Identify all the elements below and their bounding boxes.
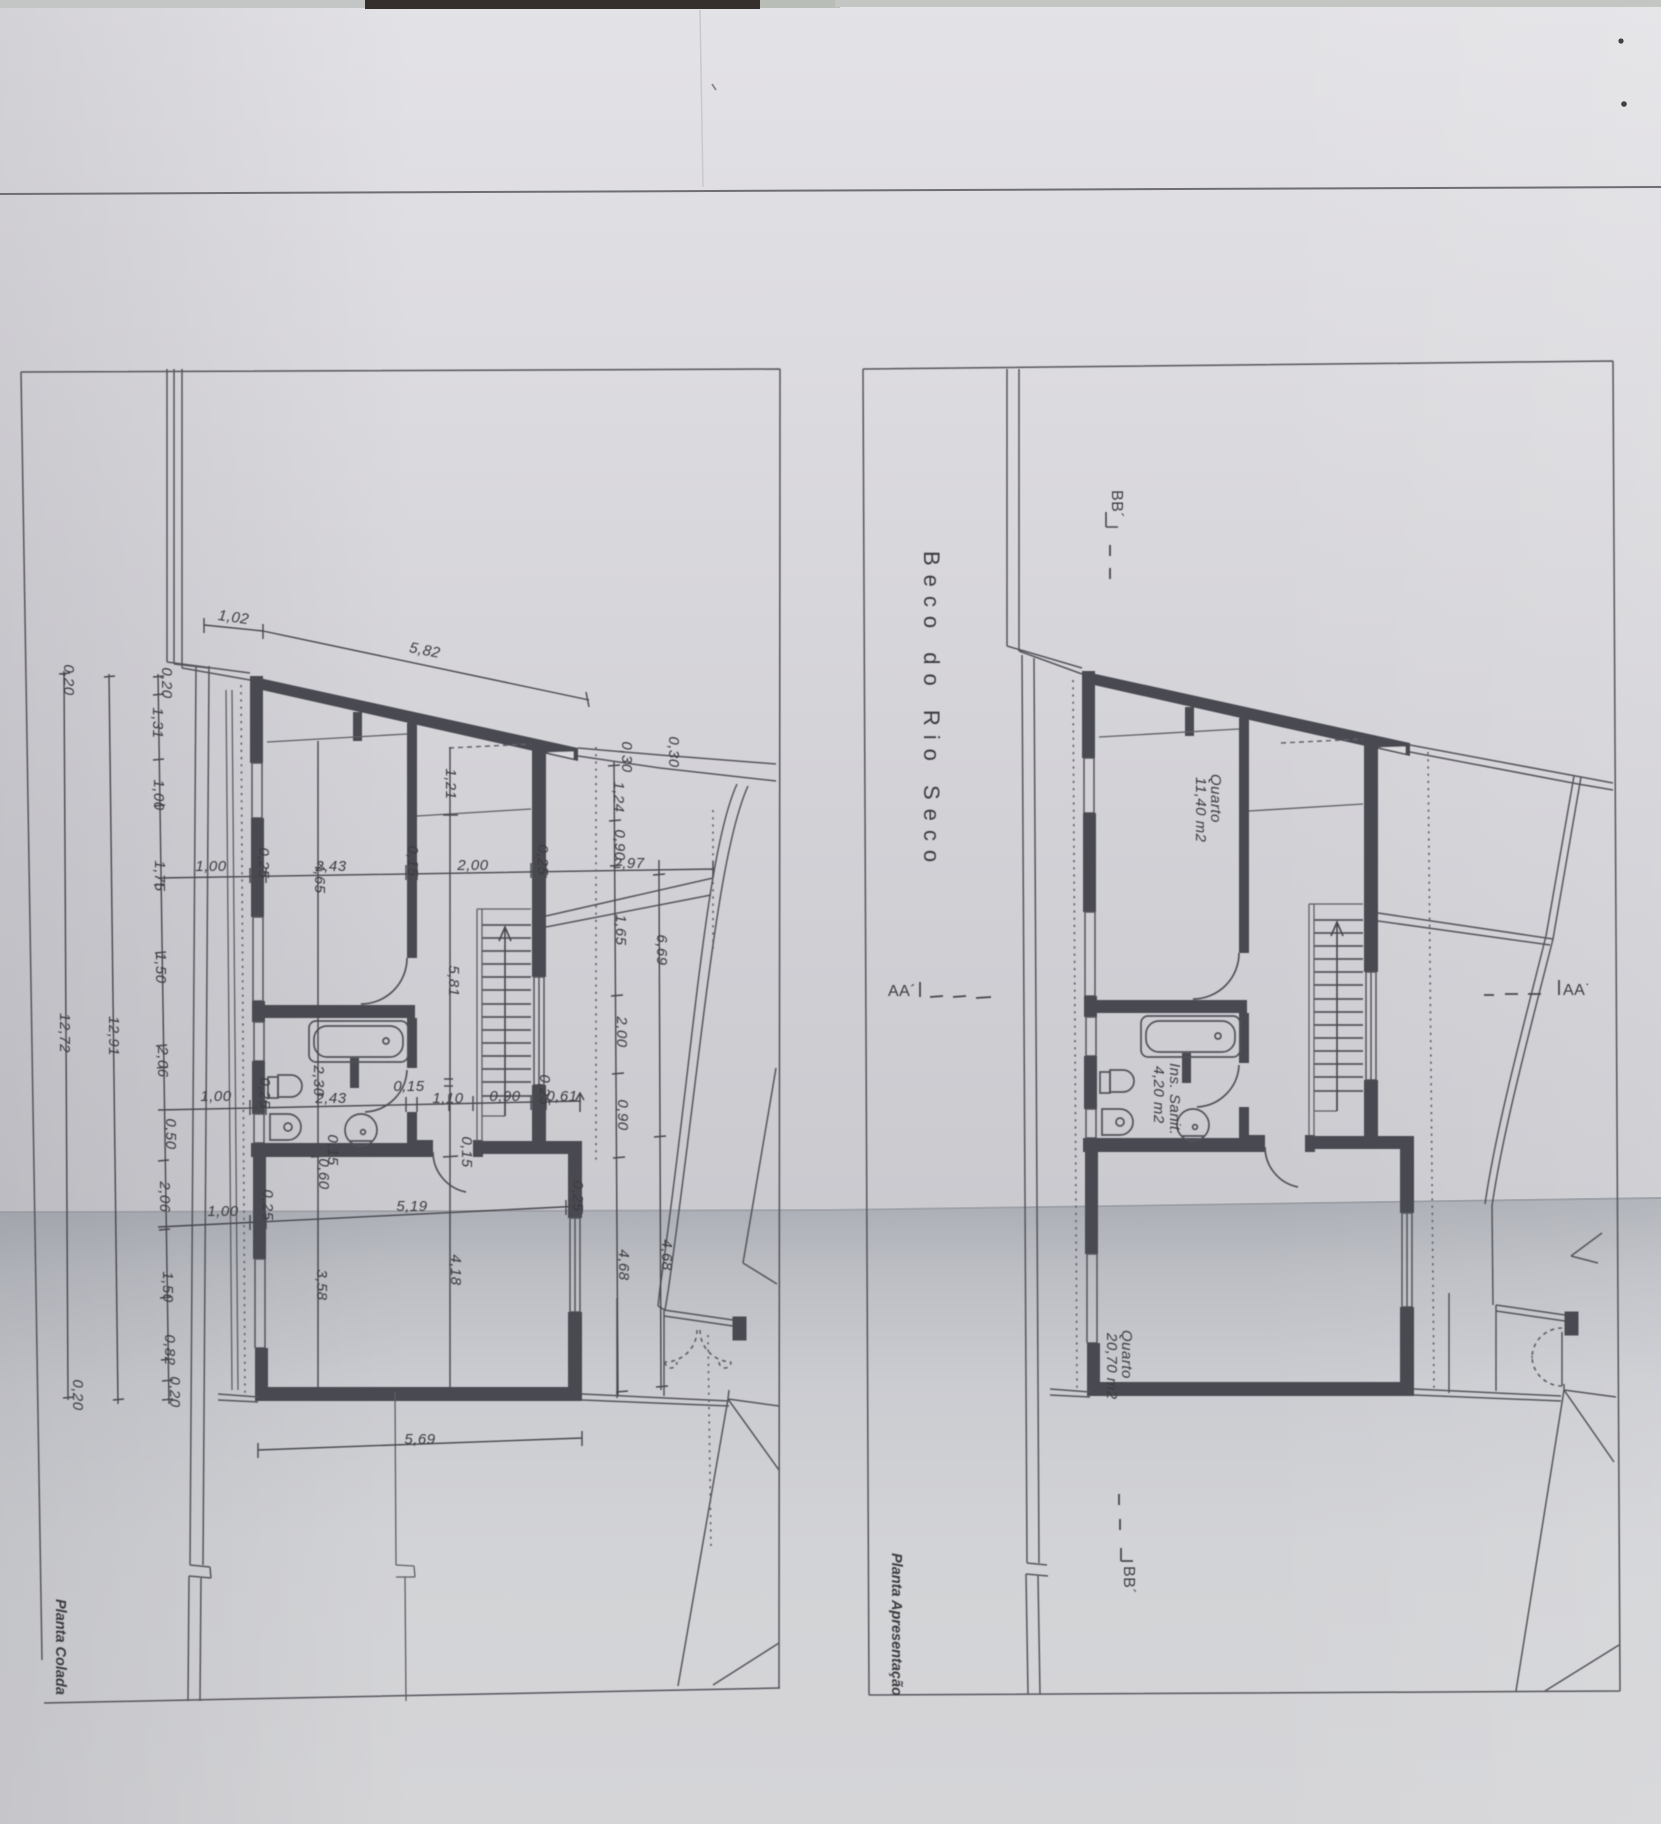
svg-text:AA˙: AA˙ xyxy=(1563,982,1591,999)
svg-text:2,06: 2,06 xyxy=(156,1180,173,1212)
svg-text:1,50: 1,50 xyxy=(159,1271,176,1302)
svg-text:20,70 m2: 20,70 m2 xyxy=(1103,1332,1120,1400)
svg-text:1,00: 1,00 xyxy=(150,779,167,810)
svg-text:0,30: 0,30 xyxy=(618,741,635,772)
svg-text:2,30: 2,30 xyxy=(310,1064,327,1096)
svg-text:5,69: 5,69 xyxy=(404,1431,435,1448)
svg-text:1,24: 1,24 xyxy=(610,781,627,812)
svg-text:2,00: 2,00 xyxy=(613,1015,630,1047)
svg-text:1,31: 1,31 xyxy=(149,707,166,738)
svg-text:1,00: 1,00 xyxy=(200,1088,231,1105)
svg-text:0,25: 0,25 xyxy=(259,1189,276,1220)
svg-text:2,43: 2,43 xyxy=(314,858,346,875)
svg-text:1,00: 1,00 xyxy=(195,858,226,875)
svg-text:0,25: 0,25 xyxy=(256,1077,273,1108)
svg-text:0,25: 0,25 xyxy=(569,1180,586,1211)
svg-text:2,06: 2,06 xyxy=(154,1045,171,1077)
svg-text:11,40 m2: 11,40 m2 xyxy=(1192,777,1209,843)
svg-text:Planta Colada: Planta Colada xyxy=(52,1599,68,1695)
svg-text:0,61: 0,61 xyxy=(546,1088,577,1105)
svg-text:AA´: AA´ xyxy=(888,983,916,1000)
svg-text:BB´: BB´ xyxy=(1120,1566,1137,1594)
svg-text:0,90: 0,90 xyxy=(614,1099,631,1130)
svg-text:4,20 m2: 4,20 m2 xyxy=(1150,1066,1167,1124)
svg-text:0,90: 0,90 xyxy=(489,1088,520,1105)
svg-text:4,68: 4,68 xyxy=(658,1239,675,1270)
svg-text:BB´: BB´ xyxy=(1108,490,1125,518)
svg-text:0,60: 0,60 xyxy=(315,1158,332,1189)
svg-text:0,25: 0,25 xyxy=(255,847,272,878)
svg-text:5,19: 5,19 xyxy=(396,1198,427,1215)
svg-text:0,25: 0,25 xyxy=(534,844,551,875)
svg-text:0,20: 0,20 xyxy=(158,667,175,698)
svg-text:4,68: 4,68 xyxy=(615,1249,632,1280)
svg-text:0,15: 0,15 xyxy=(404,845,421,876)
svg-text:5,81: 5,81 xyxy=(445,965,462,996)
svg-text:12,72: 12,72 xyxy=(56,1013,73,1053)
svg-text:0,20: 0,20 xyxy=(60,664,77,695)
svg-text:1,10: 1,10 xyxy=(432,1090,463,1107)
svg-text:3,58: 3,58 xyxy=(313,1269,330,1300)
svg-text:12,91: 12,91 xyxy=(105,1016,122,1056)
svg-text:1,75: 1,75 xyxy=(151,860,168,891)
svg-text:4,18: 4,18 xyxy=(447,1254,464,1285)
svg-text:0,20: 0,20 xyxy=(69,1379,86,1410)
svg-text:Planta Apresentação: Planta Apresentação xyxy=(888,1553,904,1696)
svg-text:1,21: 1,21 xyxy=(442,768,459,799)
svg-text:1,00: 1,00 xyxy=(207,1203,238,1220)
svg-text:6,69: 6,69 xyxy=(653,934,670,965)
svg-text:0,90: 0,90 xyxy=(611,829,628,860)
svg-text:0,82: 0,82 xyxy=(161,1334,178,1365)
svg-text:0,20: 0,20 xyxy=(166,1376,183,1407)
svg-text:0,50: 0,50 xyxy=(162,1118,179,1149)
svg-text:1,50: 1,50 xyxy=(152,952,169,983)
svg-text:0,15: 0,15 xyxy=(458,1136,475,1167)
svg-text:0,15: 0,15 xyxy=(393,1078,424,1095)
svg-text:Ins. Sanit.: Ins. Sanit. xyxy=(1166,1063,1183,1135)
svg-text:2,00: 2,00 xyxy=(456,857,488,874)
svg-text:0,30: 0,30 xyxy=(665,736,682,767)
svg-text:Beco do Rio Seco: Beco do Rio Seco xyxy=(919,551,944,871)
svg-text:1,65: 1,65 xyxy=(612,914,629,945)
